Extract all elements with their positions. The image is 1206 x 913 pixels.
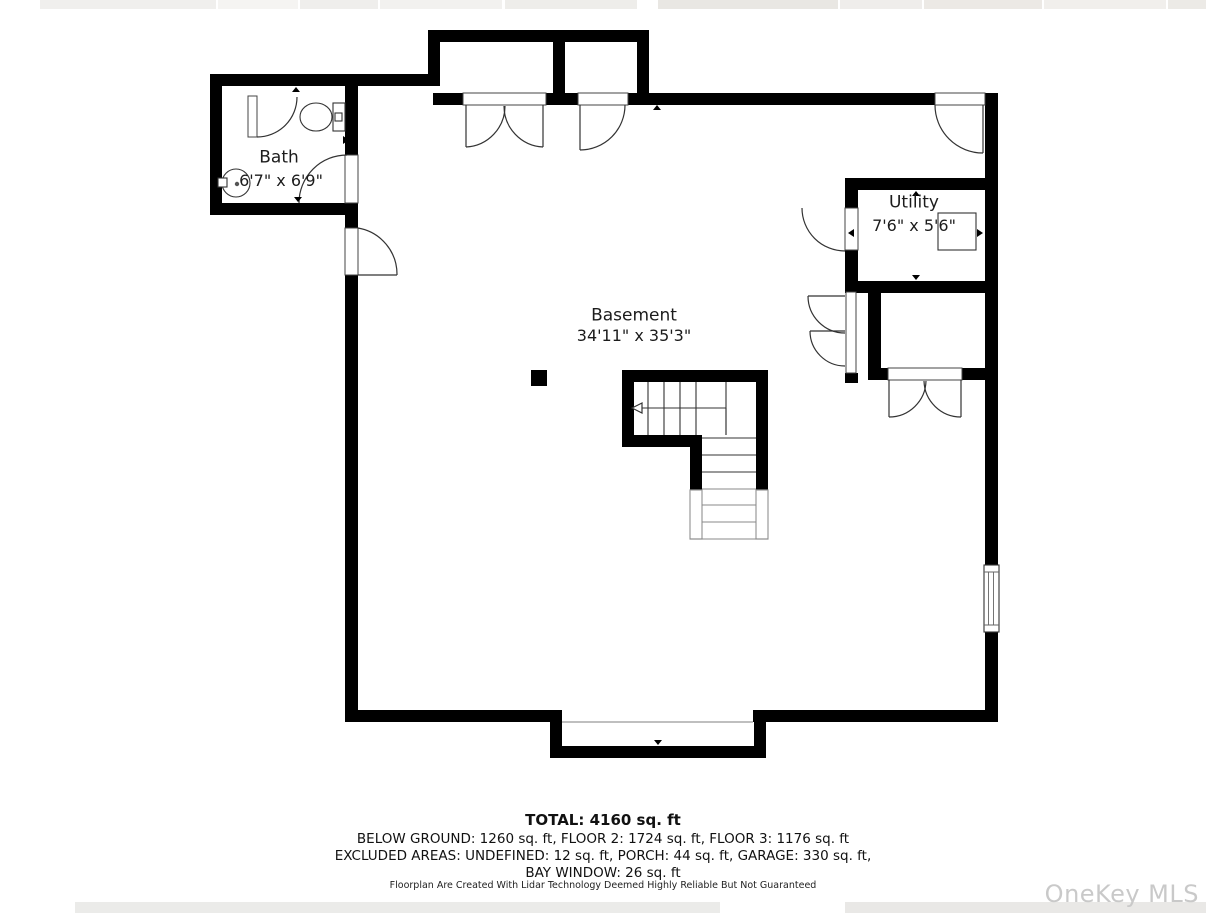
floorplan-photo-page: Bath 6'7" x 6'9" Utility 7'6" x 5'6" Bas…: [0, 0, 1206, 913]
bath-door-leaf: [345, 155, 358, 203]
entry-door-opening: [935, 93, 985, 105]
basement-left-door-leaf: [345, 228, 358, 275]
window-symbol: [984, 565, 999, 632]
excluded-areas-cont: BAY WINDOW: 26 sq. ft: [0, 865, 1206, 881]
door-arc: [935, 105, 983, 153]
basement-label: Basement: [591, 307, 677, 326]
closet-double-door-opening: [463, 93, 546, 105]
utility-dimensions: 7'6" x 5'6": [872, 217, 956, 235]
total-area: TOTAL: 4160 sq. ft: [0, 811, 1206, 829]
disclaimer-text: Floorplan Are Created With Lidar Technol…: [0, 880, 1206, 891]
utility-door-leaf: [845, 208, 858, 250]
door-arc: [889, 380, 926, 417]
floor-areas: BELOW GROUND: 1260 sq. ft, FLOOR 2: 1724…: [0, 831, 1206, 847]
door-arc: [810, 331, 845, 366]
door-arc: [924, 380, 961, 417]
support-post: [531, 370, 547, 386]
bath-label: Bath: [259, 149, 299, 168]
door-arc: [466, 105, 505, 147]
toilet-icon: [300, 103, 345, 131]
door-arc: [802, 208, 845, 251]
excluded-areas: EXCLUDED AREAS: UNDEFINED: 12 sq. ft, PO…: [0, 848, 1206, 864]
stair-walk-line: [638, 408, 726, 435]
area-summary: TOTAL: 4160 sq. ft BELOW GROUND: 1260 sq…: [0, 811, 1206, 882]
door-arc: [580, 105, 625, 150]
door-arc: [358, 228, 397, 275]
floorplan-image: [0, 0, 1206, 913]
storage-double-door-opening: [888, 368, 962, 380]
basement-dimensions: 34'11" x 35'3": [577, 327, 691, 345]
bath-dimensions: 6'7" x 6'9": [239, 172, 323, 190]
bath-inner-door-leaf: [248, 96, 257, 137]
mls-watermark: OneKey MLS: [1045, 880, 1199, 908]
utility-label: Utility: [889, 194, 939, 213]
closet-door-opening: [578, 93, 628, 105]
sliding-door-panel: [846, 292, 856, 373]
door-arc: [504, 105, 543, 147]
door-arc: [257, 97, 297, 137]
door-arc: [808, 296, 845, 333]
walls: [210, 30, 998, 758]
